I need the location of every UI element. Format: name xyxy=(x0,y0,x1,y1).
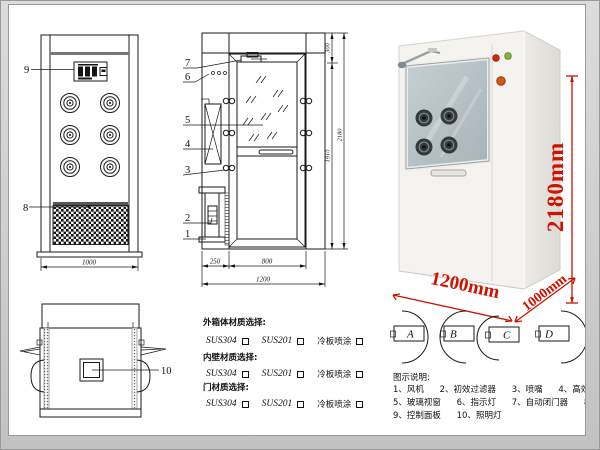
material-option-label: 冷板喷涂 xyxy=(317,368,351,380)
photo-height-dimension: 2180mm xyxy=(543,142,568,232)
material-option-label: SUS304 xyxy=(206,369,237,379)
part-label-1: 1 xyxy=(185,229,190,240)
legend-row: 9、控制面板 10、照明灯 xyxy=(393,409,514,421)
door-option-letter: C xyxy=(503,330,511,342)
photo-nozzle xyxy=(441,108,458,125)
part-label-2: 2 xyxy=(185,213,190,224)
material-checkbox[interactable] xyxy=(297,338,304,345)
legend-row: 1、风机 2、初效过滤器 3、喷嘴 4、高效过滤器 xyxy=(393,383,586,395)
material-option-label: SUS201 xyxy=(262,399,293,409)
door-option-b[interactable]: B xyxy=(440,311,474,363)
left-wall-hatch xyxy=(44,328,49,409)
material-option-label: SUS201 xyxy=(262,336,293,346)
material-option-label: 冷板喷涂 xyxy=(317,335,351,347)
product-photo: 2180mm 1200mm 1000mm xyxy=(379,19,586,341)
material-checkbox[interactable] xyxy=(297,371,304,378)
right-wing xyxy=(139,340,166,355)
door-option-letter: A xyxy=(406,329,414,341)
material-checkbox[interactable] xyxy=(356,401,363,408)
spec-sheet: 9 8 1000 xyxy=(0,0,600,450)
hepa-filter xyxy=(201,99,221,164)
front-width-dimension: 1000 xyxy=(82,259,97,267)
material-group-title: 门材质选择: xyxy=(203,381,249,393)
side-view-drawing: 7 6 5 4 3 2 1 250 800 1200 xyxy=(181,23,361,313)
photo-nozzle xyxy=(441,137,458,154)
part-label-control-panel: 9 xyxy=(24,65,29,76)
return-air-grille xyxy=(53,202,128,245)
door-option-c[interactable]: C xyxy=(477,316,519,360)
dim-total-height: 2180 xyxy=(337,128,344,142)
part-label-grille: 8 xyxy=(23,203,28,214)
indicator-lamps xyxy=(212,72,227,75)
dim-top-section: 300 xyxy=(325,42,332,54)
legend-item: 7、自动闭门器 xyxy=(512,398,568,408)
legend-item: 10、照明灯 xyxy=(457,411,502,421)
photo-nozzle xyxy=(416,110,433,127)
material-checkbox[interactable] xyxy=(356,371,363,378)
material-option-label: SUS304 xyxy=(206,399,237,409)
base-slab xyxy=(40,409,141,417)
door-handle xyxy=(259,150,293,154)
material-checkbox[interactable] xyxy=(242,371,249,378)
part-label-7: 7 xyxy=(185,58,190,69)
front-view-drawing: 9 8 1000 xyxy=(21,29,171,279)
dim-total-width: 1200 xyxy=(256,276,271,284)
material-option-label: 冷板喷涂 xyxy=(317,398,351,410)
dim-left-section: 250 xyxy=(210,258,221,266)
legend-item: 8、红外线感应器 xyxy=(584,398,586,408)
green-indicator-light xyxy=(505,53,512,60)
top-trim xyxy=(50,52,129,55)
drawing-sheet: 9 8 1000 xyxy=(8,4,586,436)
red-indicator-light xyxy=(493,55,500,62)
dim-door-height: 1910 xyxy=(325,149,332,163)
legend-item: 9、控制面板 xyxy=(393,411,441,421)
door-option-letter: D xyxy=(544,329,553,341)
door-option-letter: B xyxy=(450,329,457,341)
part-label-6: 6 xyxy=(185,72,190,83)
right-wall-hatch xyxy=(132,328,137,409)
legend-row: 5、玻璃视窗 6、指示灯 7、自动闭门器 8、红外线感应器 xyxy=(393,396,586,408)
legend-item: 1、风机 xyxy=(393,385,424,395)
material-options-row: SUS304 SUS201 冷板喷涂 xyxy=(206,335,376,347)
photo-nozzle xyxy=(416,139,433,156)
control-panel xyxy=(74,62,107,81)
legend-title: 图示说明: xyxy=(393,371,430,383)
material-options-row: SUS304 SUS201 冷板喷涂 xyxy=(206,398,376,410)
photo-door-handle xyxy=(431,170,466,176)
part-label-lamp: 10 xyxy=(161,366,172,377)
material-option-label: SUS304 xyxy=(206,336,237,346)
material-checkbox[interactable] xyxy=(297,401,304,408)
material-checkbox[interactable] xyxy=(356,338,363,345)
top-view-drawing: 10 xyxy=(19,304,194,434)
fan-unit xyxy=(199,187,229,245)
part-label-5: 5 xyxy=(185,115,190,126)
dim-door-width: 800 xyxy=(262,258,273,266)
legend-item: 6、指示灯 xyxy=(457,398,496,408)
nozzles xyxy=(61,94,120,177)
legend-item: 4、高效过滤器 xyxy=(558,385,586,395)
door-option-a[interactable]: A xyxy=(391,311,429,363)
material-options-row: SUS304 SUS201 冷板喷涂 xyxy=(206,368,376,380)
door xyxy=(229,54,305,247)
part-label-4: 4 xyxy=(185,139,191,150)
material-checkbox[interactable] xyxy=(242,401,249,408)
left-handle xyxy=(31,360,44,392)
material-group-title: 内壁材质选择: xyxy=(203,351,257,363)
material-checkbox[interactable] xyxy=(242,338,249,345)
right-handle xyxy=(137,360,150,392)
emergency-button[interactable] xyxy=(497,77,506,86)
door-direction-options: A B C D xyxy=(387,305,586,369)
glass-hatching xyxy=(243,76,288,141)
legend-item: 3、喷嘴 xyxy=(512,385,543,395)
left-wing xyxy=(20,340,42,355)
door-option-d[interactable]: D xyxy=(536,311,587,363)
material-group-title: 外箱体材质选择: xyxy=(203,316,266,328)
legend-item: 5、玻璃视窗 xyxy=(393,398,441,408)
material-option-label: SUS201 xyxy=(262,369,293,379)
door-window xyxy=(406,58,489,169)
legend-item: 2、初效过滤器 xyxy=(440,385,496,395)
